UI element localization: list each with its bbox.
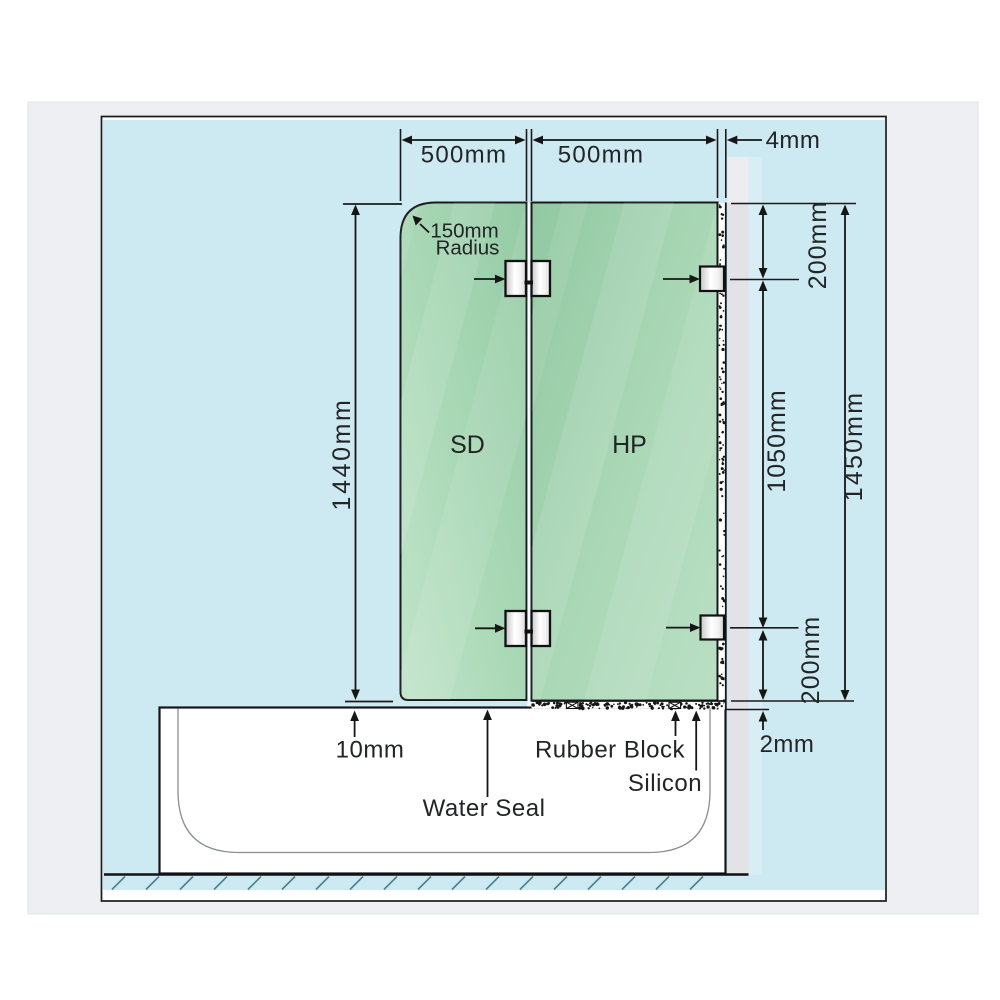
svg-text:200mm: 200mm <box>804 201 832 289</box>
svg-text:1450mm: 1450mm <box>840 391 868 501</box>
svg-text:4mm: 4mm <box>766 127 821 154</box>
svg-text:2mm: 2mm <box>760 731 815 758</box>
svg-text:HP: HP <box>612 431 647 459</box>
svg-text:10mm: 10mm <box>336 737 405 764</box>
svg-text:500mm: 500mm <box>558 142 645 169</box>
svg-text:SD: SD <box>450 431 485 459</box>
svg-text:Water Seal: Water Seal <box>423 795 546 822</box>
svg-text:1050mm: 1050mm <box>763 389 791 492</box>
svg-text:Silicon: Silicon <box>628 770 702 797</box>
svg-text:500mm: 500mm <box>421 142 508 169</box>
svg-text:200mm: 200mm <box>797 616 825 704</box>
svg-text:1440mm: 1440mm <box>328 398 356 511</box>
svg-text:Rubber Block: Rubber Block <box>535 737 686 764</box>
svg-text:Radius: Radius <box>436 237 500 260</box>
